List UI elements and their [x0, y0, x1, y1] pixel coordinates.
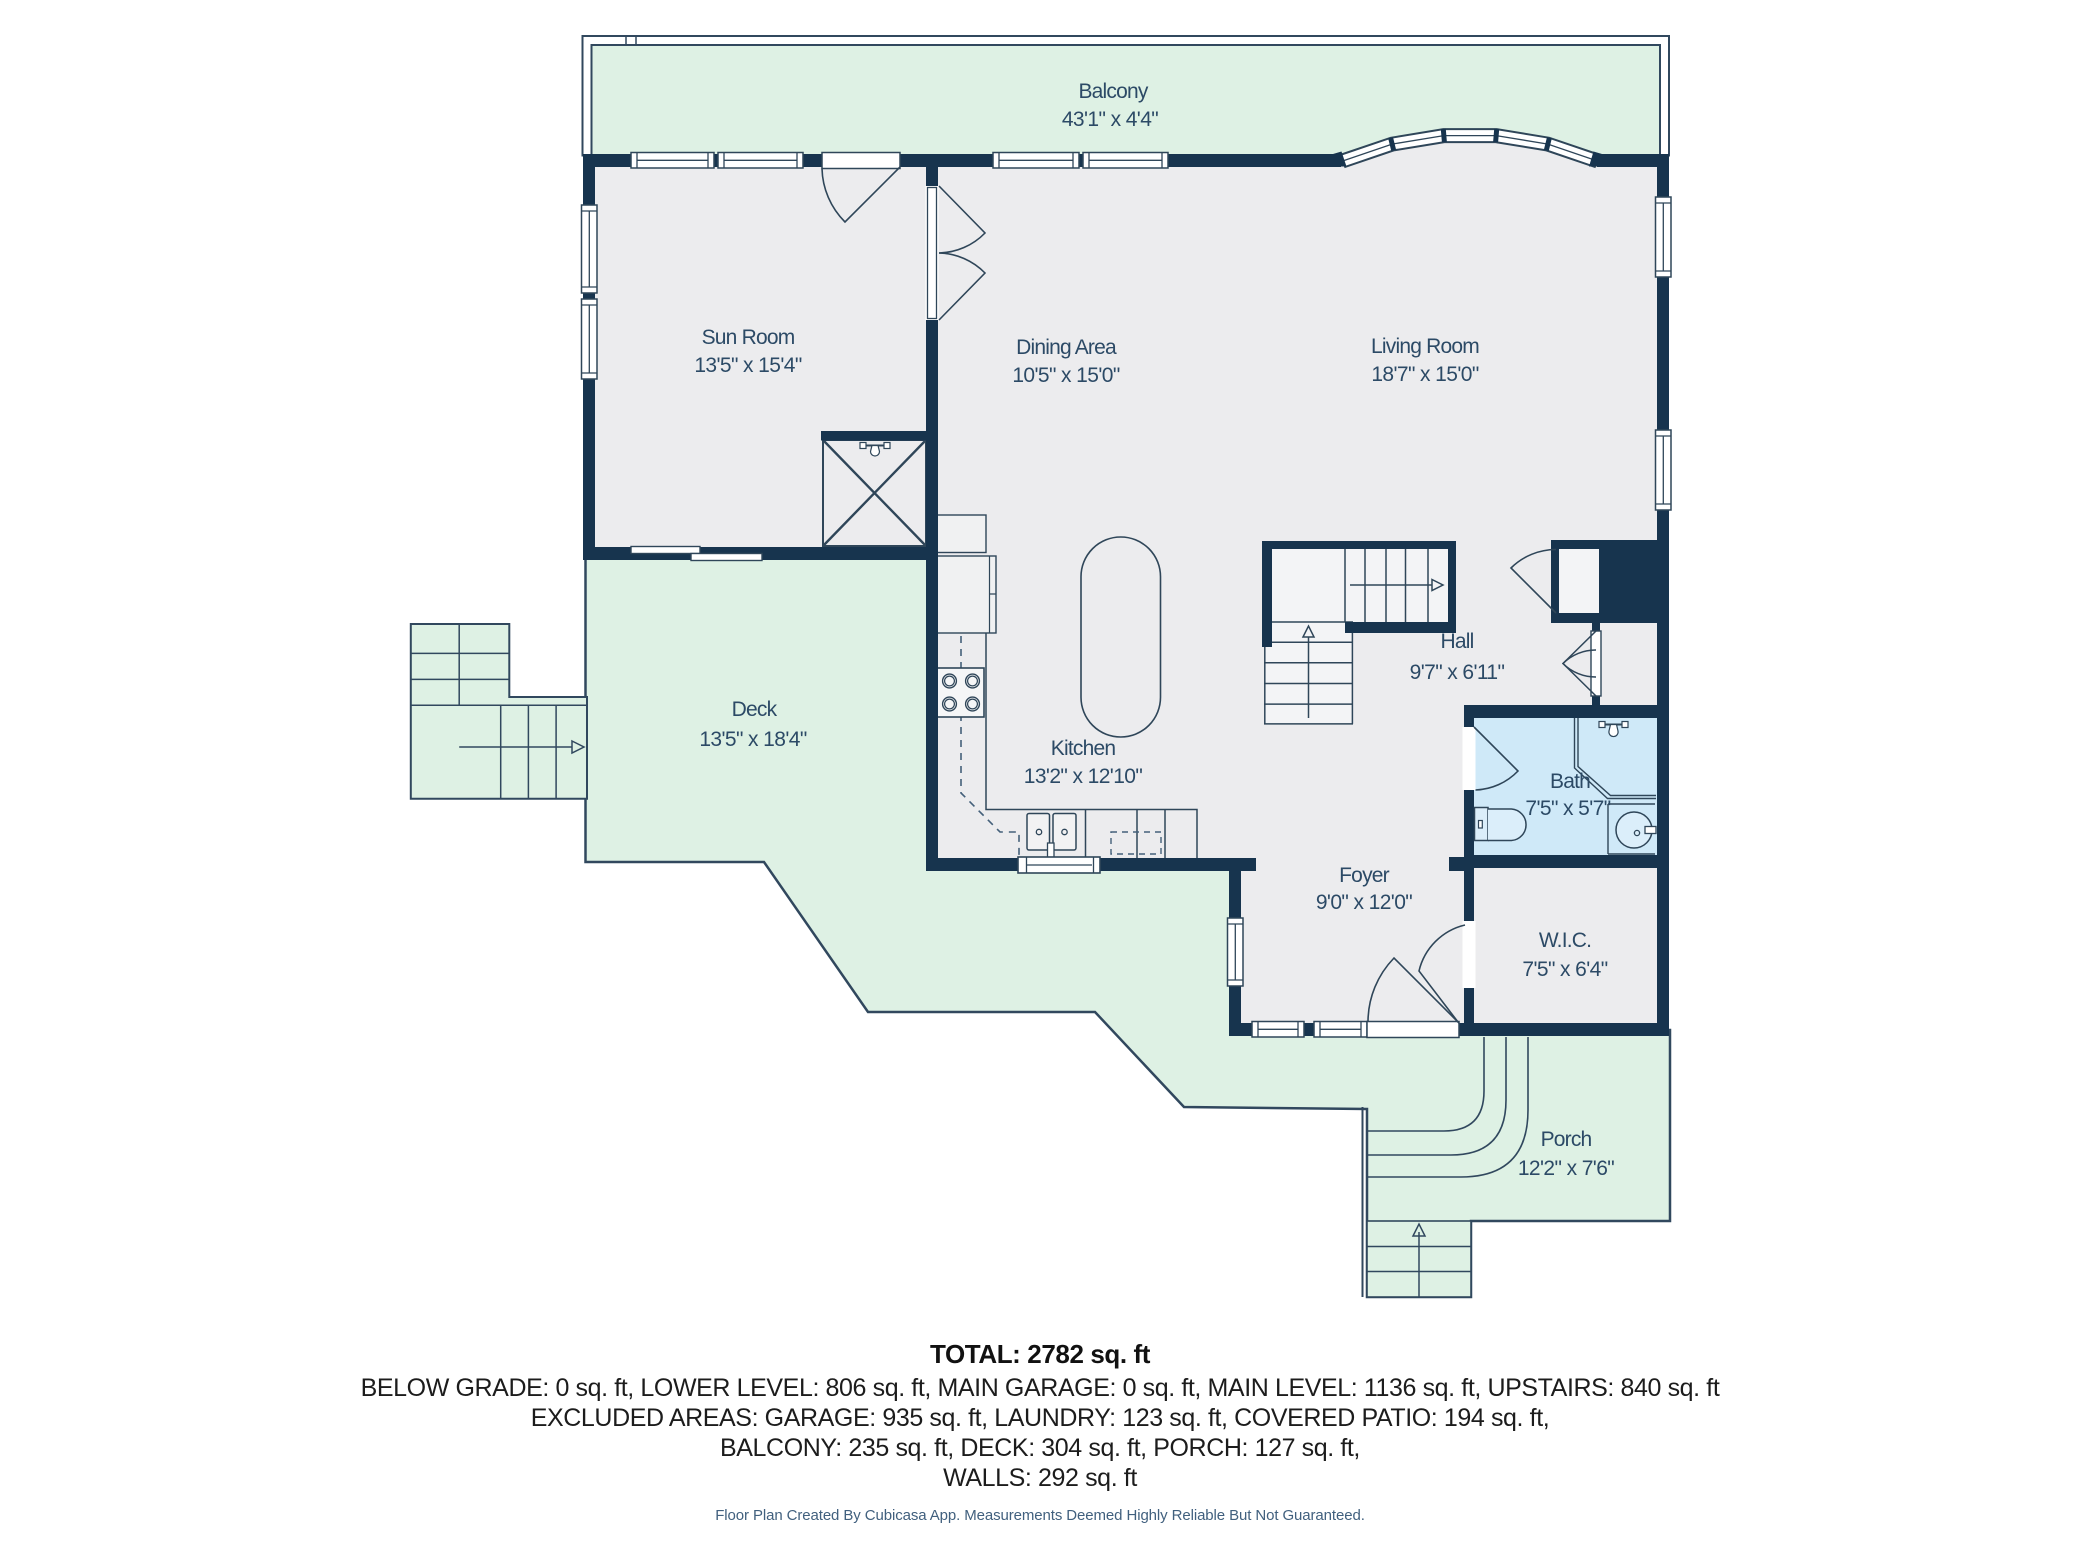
- svg-text:Living Room: Living Room: [1371, 335, 1479, 358]
- svg-text:W.I.C.: W.I.C.: [1539, 929, 1591, 952]
- svg-text:43'1" x 4'4": 43'1" x 4'4": [1062, 108, 1158, 131]
- svg-text:13'2" x 12'10": 13'2" x 12'10": [1024, 765, 1143, 788]
- svg-text:13'5" x 15'4": 13'5" x 15'4": [694, 354, 802, 377]
- svg-text:9'7" x 6'11": 9'7" x 6'11": [1410, 661, 1505, 684]
- svg-text:9'0" x 12'0": 9'0" x 12'0": [1316, 891, 1412, 914]
- svg-text:7'5" x 6'4": 7'5" x 6'4": [1522, 958, 1607, 981]
- svg-text:TOTAL: 2782 sq. ft: TOTAL: 2782 sq. ft: [930, 1339, 1151, 1369]
- svg-text:7'5" x 5'7": 7'5" x 5'7": [1525, 797, 1610, 820]
- svg-text:Hall: Hall: [1441, 630, 1474, 653]
- svg-text:Sun Room: Sun Room: [702, 326, 795, 349]
- svg-text:12'2" x 7'6": 12'2" x 7'6": [1518, 1157, 1614, 1180]
- svg-text:Dining Area: Dining Area: [1016, 336, 1117, 359]
- svg-text:Balcony: Balcony: [1078, 80, 1148, 103]
- svg-text:13'5" x 18'4": 13'5" x 18'4": [699, 728, 807, 751]
- svg-text:Foyer: Foyer: [1339, 864, 1389, 887]
- svg-text:Deck: Deck: [732, 698, 778, 721]
- svg-text:Floor Plan Created By Cubicasa: Floor Plan Created By Cubicasa App. Meas…: [715, 1507, 1365, 1524]
- svg-text:10'5" x 15'0": 10'5" x 15'0": [1012, 364, 1120, 387]
- svg-text:Kitchen: Kitchen: [1051, 737, 1116, 760]
- svg-text:BALCONY: 235 sq. ft, DECK: 304: BALCONY: 235 sq. ft, DECK: 304 sq. ft, P…: [720, 1434, 1360, 1462]
- svg-text:Bath: Bath: [1550, 770, 1590, 793]
- svg-text:Porch: Porch: [1541, 1128, 1592, 1151]
- svg-text:WALLS: 292 sq. ft: WALLS: 292 sq. ft: [943, 1464, 1137, 1492]
- svg-text:EXCLUDED AREAS: GARAGE: 935 sq: EXCLUDED AREAS: GARAGE: 935 sq. ft, LAUN…: [531, 1404, 1550, 1432]
- svg-text:BELOW GRADE: 0 sq. ft, LOWER L: BELOW GRADE: 0 sq. ft, LOWER LEVEL: 806 …: [361, 1374, 1720, 1402]
- svg-text:18'7" x 15'0": 18'7" x 15'0": [1371, 363, 1479, 386]
